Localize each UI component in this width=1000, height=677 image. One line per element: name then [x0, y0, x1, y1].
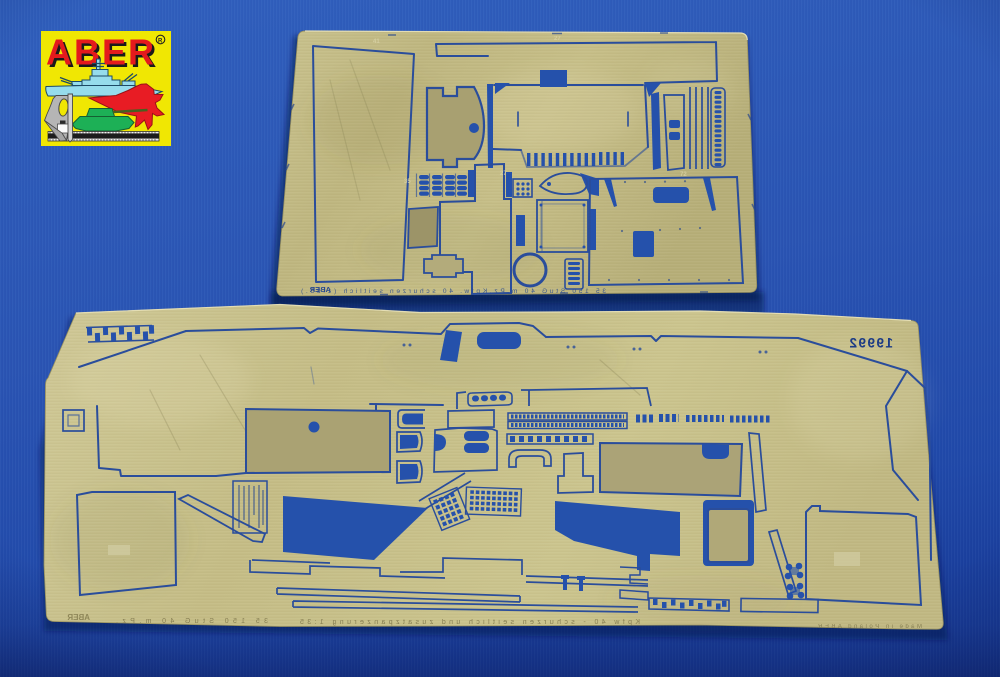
svg-text:19992: 19992	[848, 336, 893, 351]
svg-text:ABER: ABER	[67, 613, 90, 622]
svg-text:R: R	[158, 38, 163, 44]
svg-text:27: 27	[554, 36, 561, 42]
svg-text:41: 41	[373, 39, 380, 45]
svg-text:ABER: ABER	[309, 285, 331, 294]
svg-text:27: 27	[500, 171, 507, 177]
svg-text:Made in Poland ABER: Made in Poland ABER	[817, 624, 922, 630]
svg-text:35: 35	[404, 179, 411, 185]
svg-text:72: 72	[680, 172, 687, 178]
